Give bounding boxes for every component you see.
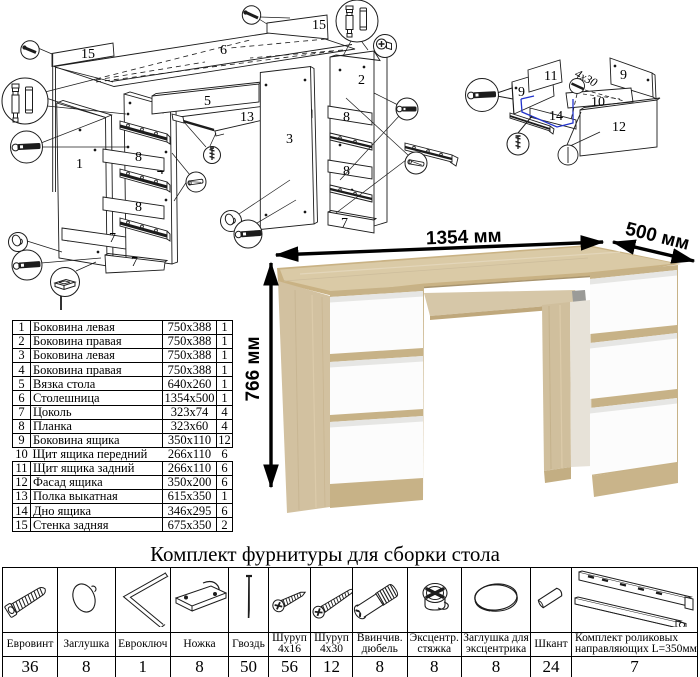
svg-text:7: 7 bbox=[341, 216, 348, 231]
svg-text:11: 11 bbox=[544, 69, 557, 84]
svg-text:3: 3 bbox=[286, 132, 293, 147]
svg-text:500 мм: 500 мм bbox=[623, 219, 691, 255]
svg-text:7: 7 bbox=[109, 231, 116, 246]
svg-text:6: 6 bbox=[220, 43, 227, 58]
svg-text:5: 5 bbox=[204, 94, 211, 109]
svg-text:766 мм: 766 мм bbox=[243, 336, 264, 401]
svg-text:15: 15 bbox=[81, 47, 95, 62]
svg-text:15: 15 bbox=[312, 18, 326, 33]
svg-text:8: 8 bbox=[135, 150, 142, 165]
svg-text:2: 2 bbox=[358, 73, 365, 88]
svg-text:12: 12 bbox=[612, 120, 626, 135]
svg-text:14: 14 bbox=[549, 109, 563, 124]
svg-text:1: 1 bbox=[76, 157, 83, 172]
svg-text:9: 9 bbox=[620, 68, 627, 83]
svg-text:1354 мм: 1354 мм bbox=[426, 226, 502, 250]
svg-text:8: 8 bbox=[343, 164, 350, 179]
svg-text:8: 8 bbox=[343, 110, 350, 125]
svg-text:8: 8 bbox=[135, 200, 142, 215]
svg-text:13: 13 bbox=[240, 110, 254, 125]
svg-text:7: 7 bbox=[131, 255, 138, 270]
